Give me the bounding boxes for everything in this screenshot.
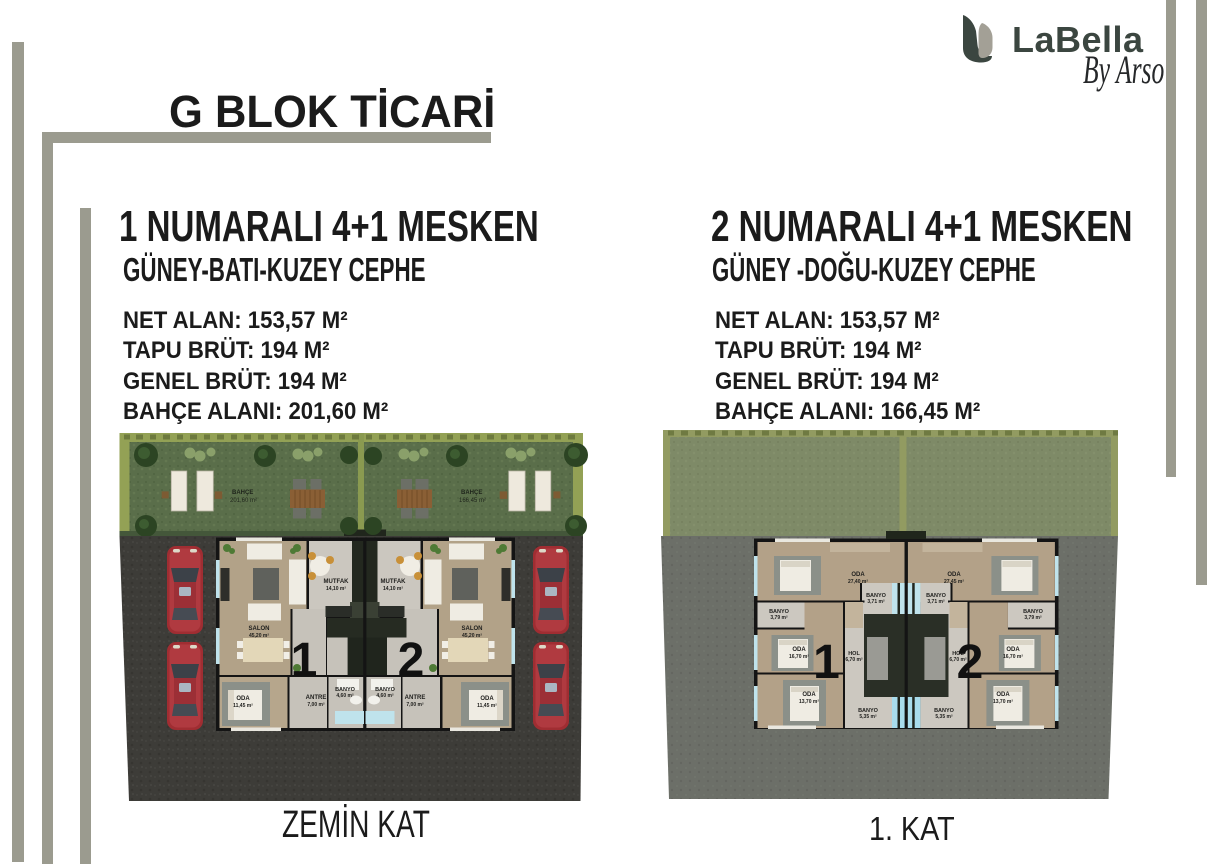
svg-text:6,70 m²: 6,70 m²: [845, 657, 863, 663]
svg-text:13,70 m²: 13,70 m²: [799, 699, 819, 705]
svg-text:14,10 m²: 14,10 m²: [326, 586, 346, 592]
svg-text:SALON: SALON: [249, 626, 270, 632]
svg-text:MUTFAK: MUTFAK: [324, 579, 350, 585]
svg-text:11,45 m²: 11,45 m²: [477, 703, 497, 709]
svg-text:1: 1: [291, 634, 318, 687]
svg-text:ODA: ODA: [480, 696, 494, 702]
svg-text:3,71 m²: 3,71 m²: [927, 599, 945, 605]
svg-text:SALON: SALON: [462, 626, 483, 632]
svg-text:MUTFAK: MUTFAK: [381, 579, 407, 585]
svg-text:27,40 m²: 27,40 m²: [848, 579, 868, 585]
svg-text:3,79 m²: 3,79 m²: [770, 615, 788, 621]
svg-text:11,45 m²: 11,45 m²: [233, 703, 253, 709]
svg-text:13,70 m²: 13,70 m²: [993, 699, 1013, 705]
svg-text:7,00 m²: 7,00 m²: [406, 702, 424, 708]
svg-text:2: 2: [398, 634, 425, 687]
svg-text:45,20 m²: 45,20 m²: [249, 633, 269, 639]
svg-text:1: 1: [813, 636, 840, 689]
svg-text:45,20 m²: 45,20 m²: [462, 633, 482, 639]
svg-text:2: 2: [957, 636, 984, 689]
svg-text:ODA: ODA: [851, 572, 865, 578]
svg-text:201,60 m²: 201,60 m²: [230, 498, 257, 504]
svg-text:27,45 m²: 27,45 m²: [944, 579, 964, 585]
svg-text:ODA: ODA: [792, 647, 806, 653]
svg-text:4,60 m²: 4,60 m²: [336, 693, 354, 699]
svg-text:4,60 m²: 4,60 m²: [376, 693, 394, 699]
svg-text:ANTRE: ANTRE: [306, 695, 327, 701]
svg-text:5,35 m²: 5,35 m²: [859, 714, 877, 720]
svg-text:ANTRE: ANTRE: [405, 695, 426, 701]
svg-text:5,35 m²: 5,35 m²: [935, 714, 953, 720]
svg-text:BAHÇE: BAHÇE: [461, 490, 482, 496]
svg-text:14,10 m²: 14,10 m²: [383, 586, 403, 592]
svg-text:ODA: ODA: [802, 692, 816, 698]
svg-text:ODA: ODA: [947, 572, 961, 578]
svg-text:BAHÇE: BAHÇE: [232, 490, 253, 496]
svg-text:16,70 m²: 16,70 m²: [1003, 654, 1023, 660]
svg-text:ODA: ODA: [1006, 647, 1020, 653]
svg-text:ODA: ODA: [236, 696, 250, 702]
svg-text:166,45 m²: 166,45 m²: [459, 498, 486, 504]
svg-text:ODA: ODA: [996, 692, 1010, 698]
svg-text:7,00 m²: 7,00 m²: [307, 702, 325, 708]
svg-text:16,70 m²: 16,70 m²: [789, 654, 809, 660]
svg-text:3,71 m²: 3,71 m²: [867, 599, 885, 605]
svg-text:3,79 m²: 3,79 m²: [1024, 615, 1042, 621]
